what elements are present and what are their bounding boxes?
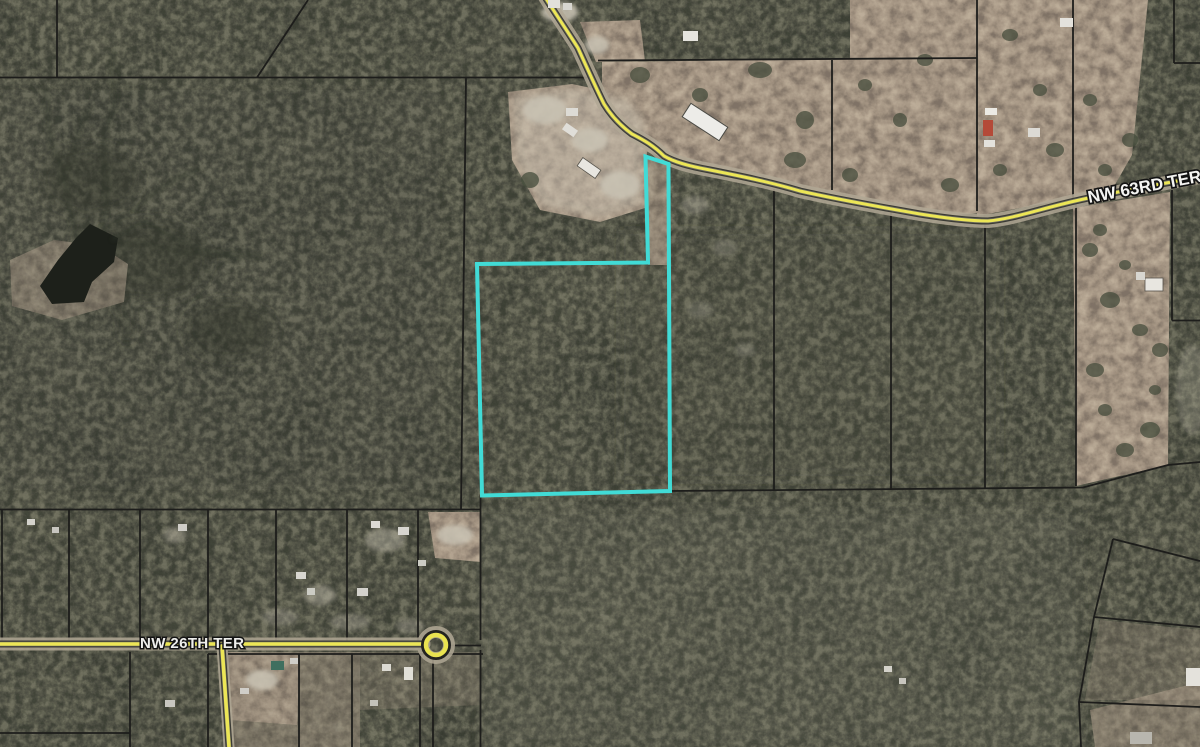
- svg-text:NW 26TH TER: NW 26TH TER: [140, 635, 244, 652]
